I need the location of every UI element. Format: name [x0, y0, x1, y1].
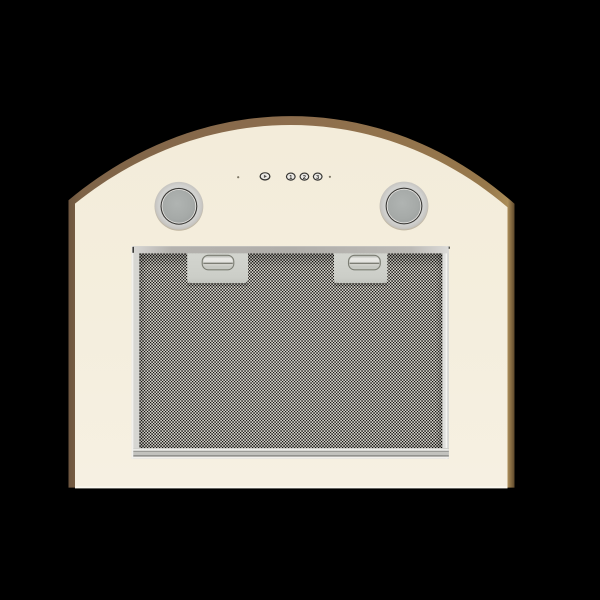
svg-text:2: 2	[303, 175, 306, 181]
svg-text:1: 1	[289, 175, 292, 181]
svg-text:3: 3	[316, 175, 319, 181]
